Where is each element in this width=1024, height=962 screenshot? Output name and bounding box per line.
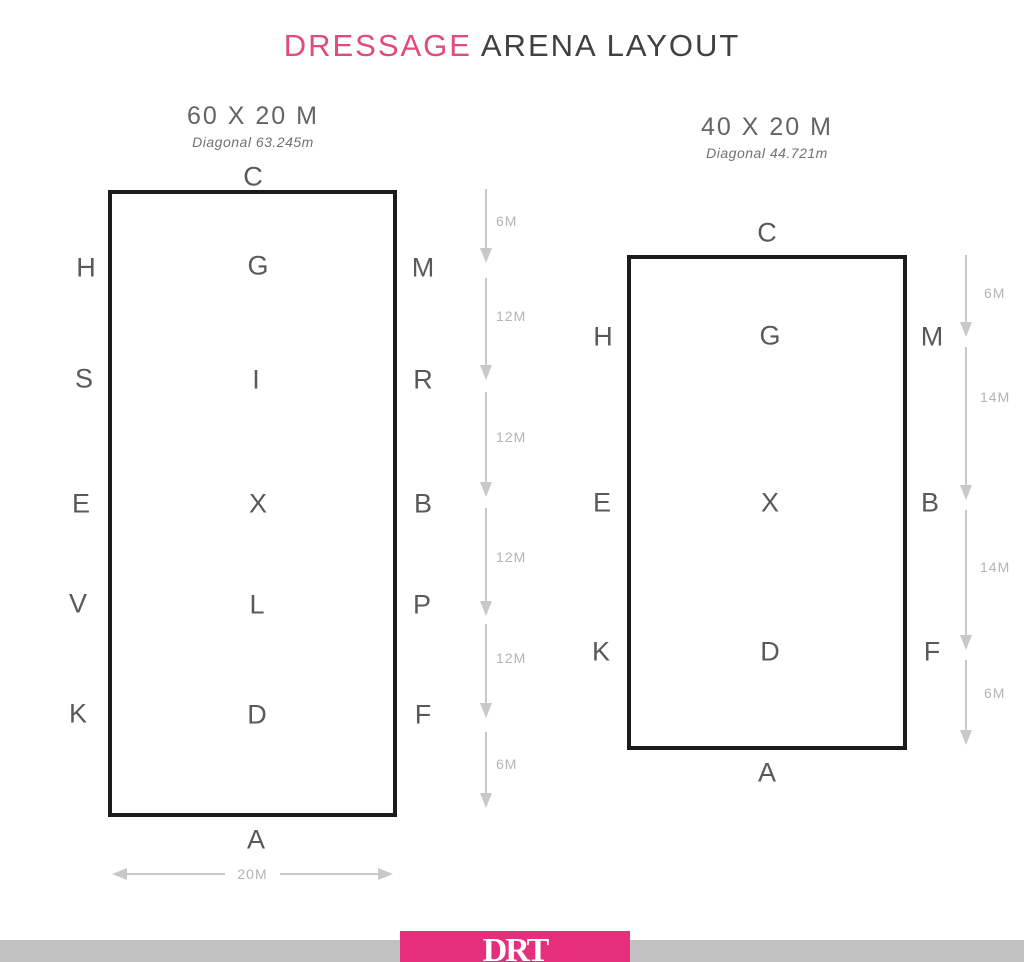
arena40-letter-c: C [757,220,777,247]
page-title-rest: ARENA LAYOUT [481,28,740,63]
arrow-shaft [965,510,967,635]
arena60-letter-e: E [72,491,90,518]
arena60-measure-arrow-down-icon-1 [479,189,493,263]
down-arrow-head-icon [960,730,972,745]
arrow-shaft [965,255,967,322]
page-title: DRESSAGE ARENA LAYOUT [0,28,1024,64]
arena40-measure-arrow-down-icon-1 [959,255,973,337]
arena60-letter-l: L [249,592,264,619]
arena40-letter-m: M [921,324,944,351]
down-arrow-head-icon [960,485,972,500]
arena40-measure-arrow-down-icon-3 [959,510,973,650]
arena60-letter-v: V [69,591,87,618]
right-arrow-head-icon [378,868,393,880]
arena60-letter-r: R [413,367,433,394]
arena60-width-label: 20M [225,867,279,881]
arena60-diagonal-label: Diagonal 63.245m [108,134,398,150]
arena40-letter-a: A [758,760,776,787]
arena60-measure-label-1: 6M [496,214,517,228]
arena40-measure-label-1: 6M [984,286,1005,300]
arena40-letter-d: D [760,639,780,666]
arena60-letter-d: D [247,702,267,729]
arena60-width-arrow: 20M [112,867,393,881]
arena60-measure-label-6: 6M [496,757,517,771]
arena60-size-label: 60 X 20 M [108,102,398,131]
arena40-letter-g: G [759,323,780,350]
arena40-letter-x: X [761,490,779,517]
arrow-shaft [485,732,487,793]
arena40-header: 40 X 20 M Diagonal 44.721m [627,113,907,161]
arena40-measure-label-2: 14M [980,390,1010,404]
arrow-shaft [485,278,487,365]
arena40-measure-arrow-down-icon-4 [959,660,973,745]
arena60-measure-arrow-down-icon-2 [479,278,493,380]
arena60-letter-c: C [243,164,263,191]
arena60-letter-g: G [247,253,268,280]
arena60-measure-label-4: 12M [496,550,526,564]
page-title-accent: DRESSAGE [284,28,472,63]
down-arrow-head-icon [960,322,972,337]
arena40-letter-e: E [593,490,611,517]
arena40-letter-k: K [592,639,610,666]
arena60-letter-p: P [413,592,431,619]
arena60-letter-s: S [75,366,93,393]
arrow-shaft [127,873,225,875]
arena60-letter-x: X [249,491,267,518]
arena40-letter-b: B [921,490,939,517]
arrow-shaft [485,508,487,601]
arena60-letter-m: M [412,255,435,282]
arena60-letter-k: K [69,701,87,728]
arena40-size-label: 40 X 20 M [627,113,907,142]
down-arrow-head-icon [960,635,972,650]
arena40-measure-arrow-down-icon-2 [959,347,973,500]
arena40-diagonal-label: Diagonal 44.721m [627,145,907,161]
arena60-measure-label-2: 12M [496,309,526,323]
arena40-letter-f: F [924,639,941,666]
arrow-shaft [965,347,967,485]
arena60-measure-arrow-down-icon-4 [479,508,493,616]
arena60-letter-f: F [415,702,432,729]
arena60-measure-arrow-down-icon-6 [479,732,493,808]
down-arrow-head-icon [480,248,492,263]
dressage-arena-layout-page: DRESSAGE ARENA LAYOUT 60 X 20 M Diagonal… [0,0,1024,962]
arena60-letter-b: B [414,491,432,518]
arena60-letter-h: H [76,255,96,282]
logo-text: DRT [400,934,630,962]
down-arrow-head-icon [480,703,492,718]
arrow-shaft [485,624,487,703]
arena40-measure-label-4: 6M [984,686,1005,700]
arrow-shaft [485,392,487,482]
arena60-measure-label-5: 12M [496,651,526,665]
left-arrow-head-icon [112,868,127,880]
arena40-measure-label-3: 14M [980,560,1010,574]
arena60-measure-arrow-down-icon-5 [479,624,493,718]
arena40-letter-h: H [593,324,613,351]
down-arrow-head-icon [480,601,492,616]
footer-logo: DRT [400,931,630,962]
arrow-shaft [485,189,487,248]
arena60-measure-arrow-down-icon-3 [479,392,493,497]
arena60-header: 60 X 20 M Diagonal 63.245m [108,102,398,150]
arrow-shaft [280,873,378,875]
arena60-letter-a: A [247,827,265,854]
arrow-shaft [965,660,967,730]
down-arrow-head-icon [480,793,492,808]
down-arrow-head-icon [480,365,492,380]
arena60-measure-label-3: 12M [496,430,526,444]
down-arrow-head-icon [480,482,492,497]
arena60-letter-i: I [252,367,260,394]
